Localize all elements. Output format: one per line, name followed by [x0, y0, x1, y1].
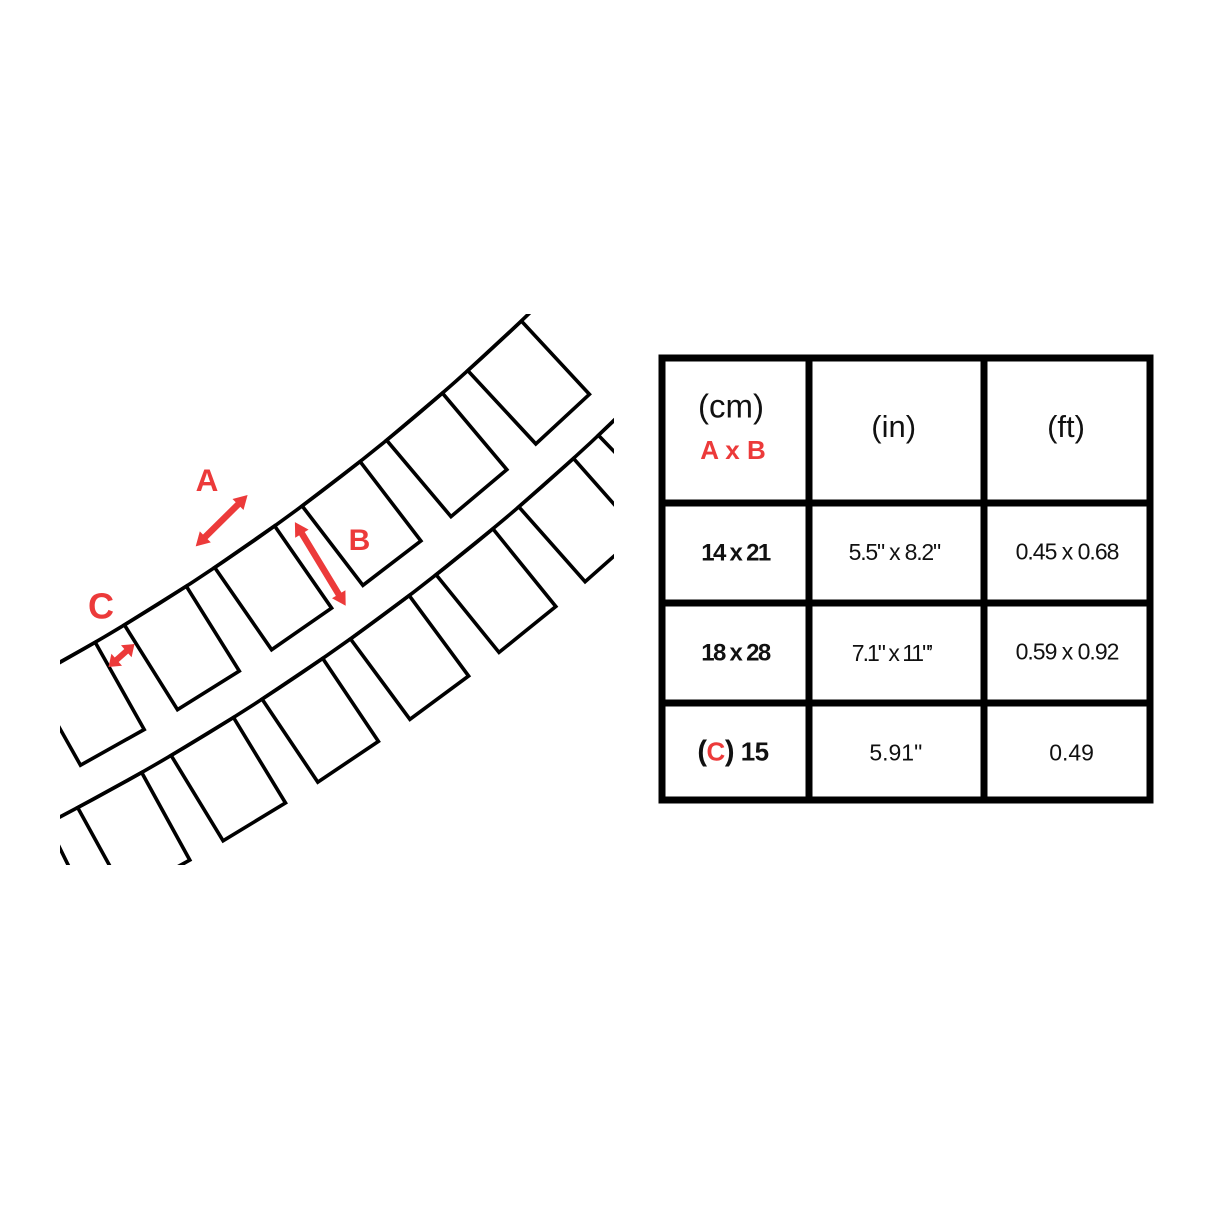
svg-text:0.45 x 0.68: 0.45 x 0.68	[1016, 539, 1119, 565]
svg-text:(cm): (cm)	[698, 388, 764, 425]
svg-text:7.1" x 11"’: 7.1" x 11"’	[852, 640, 932, 666]
svg-text:5.91": 5.91"	[869, 740, 922, 766]
svg-text:(ft): (ft)	[1047, 409, 1085, 444]
svg-text:18 x 28: 18 x 28	[701, 640, 771, 667]
svg-text:5.5" x 8.2": 5.5" x 8.2"	[849, 539, 941, 565]
svg-text:A x B: A x B	[700, 435, 766, 465]
svg-text:A: A	[196, 462, 219, 498]
svg-text:0.49: 0.49	[1049, 740, 1094, 766]
svg-text:14 x 21: 14 x 21	[701, 540, 771, 567]
svg-text:(C) 15: (C) 15	[697, 736, 768, 768]
svg-text:C: C	[88, 586, 114, 627]
svg-text:0.59 x 0.92: 0.59 x 0.92	[1016, 639, 1119, 665]
svg-text:(in): (in)	[871, 409, 916, 444]
svg-text:B: B	[349, 524, 371, 557]
